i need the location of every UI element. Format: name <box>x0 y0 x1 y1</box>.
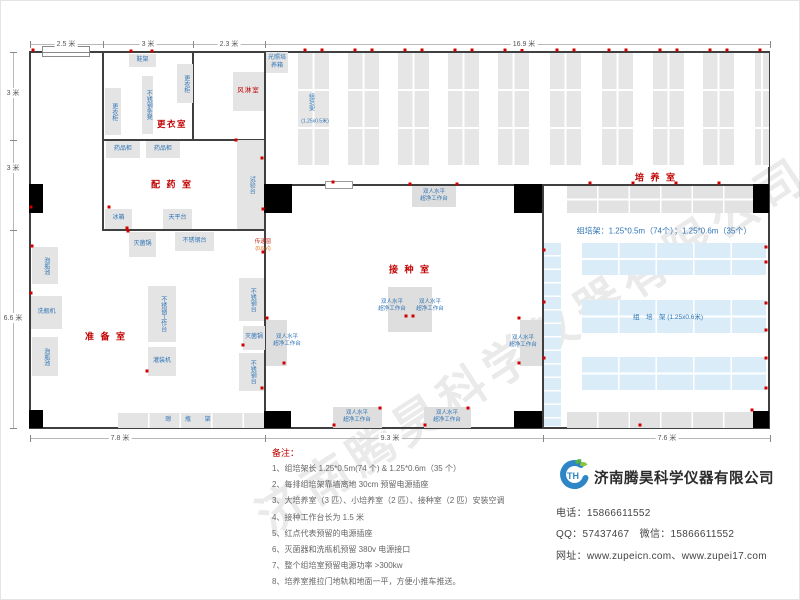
note-line: 8、培养室推拉门地轨和地面一平，方便小推车推送。 <box>272 576 557 587</box>
socket-dot <box>543 357 546 360</box>
socket-dot <box>718 182 721 185</box>
culture-rack-row <box>567 412 753 428</box>
svg-text:TH: TH <box>567 471 579 481</box>
label-top-rack-size: (1.25x0.5米) <box>301 118 329 125</box>
company-name: 济南腾昊科学仪器有限公司 <box>594 467 774 488</box>
dim-tick <box>770 41 771 48</box>
socket-dot <box>261 157 264 160</box>
bench-label-clean-bench-center-right: 双人水平超净工作台 <box>416 299 444 313</box>
contact-list: 电话：15866611552QQ：57437467 微信：15866611552… <box>556 504 794 562</box>
sliding-door <box>325 181 353 189</box>
equipment-medicine-cabinet-1: 药品柜 <box>106 141 140 158</box>
culture-rack-blue-row <box>582 357 766 390</box>
socket-dot <box>354 49 357 52</box>
socket-dot <box>32 49 35 52</box>
dim-tick <box>30 435 31 442</box>
room-label-dispensing-room: 配 药 室 <box>151 178 193 191</box>
socket-dot <box>504 49 507 52</box>
pillar <box>514 411 542 428</box>
equipment-steel-worktable: 不锈钢工作台 <box>148 286 176 342</box>
socket-dot <box>543 249 546 252</box>
socket-dot <box>146 370 149 373</box>
socket-dot <box>371 49 374 52</box>
socket-dot <box>126 227 129 230</box>
pillar <box>753 411 769 428</box>
socket-dot <box>726 49 729 52</box>
contact-line: QQ：57437467 微信：15866611552 <box>556 525 794 540</box>
note-line: 5、红点代表预留的电源插座 <box>272 528 557 539</box>
equipment-locker-right: 更衣柜 <box>177 64 193 103</box>
pillar <box>29 410 43 428</box>
equipment-test-bench: 试验台 <box>237 140 264 229</box>
socket-dot <box>304 49 307 52</box>
socket-dot <box>751 409 754 412</box>
socket-dot <box>30 292 33 295</box>
socket-dot <box>266 317 269 320</box>
note-line: 1、组培架长 1.25*0.5m(74 个) & 1.25*0.6m（35 个） <box>272 463 557 474</box>
socket-dot <box>379 407 382 410</box>
equipment-bottle-washer: 洗瓶机 <box>31 296 62 329</box>
pillar <box>514 184 542 213</box>
dim-tick <box>265 41 266 48</box>
equipment-sterilizer-1: 灭菌锅 <box>129 232 156 257</box>
bench-label-clean-bench-left-wall: 双人水平超净工作台 <box>273 334 301 348</box>
equipment-drying-rack: 晾 瓶 架 <box>118 413 264 428</box>
socket-dot <box>261 387 264 390</box>
equipment-locker-left: 更衣柜 <box>105 88 121 135</box>
socket-dot <box>333 424 336 427</box>
socket-dot <box>471 49 474 52</box>
socket-dot <box>659 49 662 52</box>
note-line: 6、灭菌器和洗瓶机预留 380v 电源接口 <box>272 544 557 555</box>
equipment-balance-table: 天平台 <box>163 209 192 229</box>
socket-dot <box>543 301 546 304</box>
dim-tick <box>103 41 104 48</box>
company-block: TH 济南腾昊科学仪器有限公司 电话：15866611552QQ：5743746… <box>556 458 794 562</box>
notes-block: 备注： 1、组培架长 1.25*0.5m(74 个) & 1.25*0.6m（3… <box>272 446 557 593</box>
room-label-dressing-room: 更衣室 <box>157 118 187 130</box>
wall-dressing-left <box>102 51 104 231</box>
socket-dot <box>556 49 559 52</box>
socket-dot <box>31 245 34 248</box>
socket-dot <box>589 182 592 185</box>
note-line: 4、接种工作台长为 1.5 米 <box>272 512 557 523</box>
dim-tick <box>10 230 17 231</box>
dim-tick <box>10 428 17 429</box>
culture-rack-column <box>348 53 379 167</box>
wall-left <box>29 51 31 429</box>
culture-rack-blue-row <box>582 243 766 275</box>
dim-label-bottom: 9.3 米 <box>379 433 402 443</box>
equipment-light-incubator: 光照培养箱 <box>266 52 288 73</box>
socket-dot <box>283 362 286 365</box>
pillar <box>264 411 291 428</box>
equipment-filling-machine: 灌装机 <box>148 347 176 376</box>
dim-tick <box>10 52 17 53</box>
note-line: 7、整个组培室预留电源功率 >300kw <box>272 560 557 571</box>
dim-label-bottom: 7.8 米 <box>109 433 132 443</box>
socket-dot <box>235 139 238 142</box>
culture-rack-strip <box>544 243 561 426</box>
pillar <box>753 184 769 213</box>
company-logo-icon: TH <box>556 458 590 497</box>
socket-dot <box>409 183 412 186</box>
socket-dot <box>151 50 154 53</box>
equipment-steel-table-2: 不锈钢台 <box>239 278 264 321</box>
culture-rack-column <box>550 53 581 167</box>
note-line: 3、大培养室（3 匹）、小培养室（2 匹）、接种室（2 匹）安装空调 <box>272 495 557 506</box>
dim-tick <box>193 41 194 48</box>
socket-dot <box>242 344 245 347</box>
socket-dot <box>404 49 407 52</box>
socket-dot <box>412 315 415 318</box>
dim-label-top: 2.5 米 <box>55 39 78 49</box>
dim-label-top: 16.9 米 <box>511 39 538 49</box>
socket-dot <box>573 49 576 52</box>
socket-dot <box>30 206 33 209</box>
socket-dot <box>454 49 457 52</box>
pillar <box>29 184 43 213</box>
culture-rack-column <box>398 53 429 167</box>
culture-rack-column <box>755 53 769 167</box>
equipment-soak-pool-2: 泡瓶池 <box>32 337 58 376</box>
socket-dot <box>321 49 324 52</box>
contact-line: 电话：15866611552 <box>556 504 794 519</box>
culture-rack-column <box>498 53 529 167</box>
socket-dot <box>765 261 768 264</box>
socket-dot <box>625 49 628 52</box>
equipment-sterilizer-2: 灭菌锅 <box>243 326 265 350</box>
socket-dot <box>765 387 768 390</box>
dim-label-top: 2.3 米 <box>218 39 241 49</box>
pillar <box>264 184 292 213</box>
notes-list: 1、组培架长 1.25*0.5m(74 个) & 1.25*0.6m（35 个）… <box>272 463 557 587</box>
dim-label-top: 3 米 <box>140 39 157 49</box>
dim-label-left: 3 米 <box>5 88 22 98</box>
equipment-air-shower: 风淋室 <box>233 72 264 111</box>
socket-dot <box>676 49 679 52</box>
culture-rack-column <box>703 53 734 167</box>
label-rack-spec: 组培架：1.25*0.5m（74个）；1.25*0.6m（35个） <box>577 226 752 237</box>
equipment-medicine-cabinet-2: 药品柜 <box>146 141 180 158</box>
socket-dot <box>765 329 768 332</box>
dim-label-left: 3 米 <box>5 163 22 173</box>
socket-dot <box>421 49 424 52</box>
bench-label-clean-bench-center-left: 双人水平超净工作台 <box>378 299 406 313</box>
socket-dot <box>675 182 678 185</box>
note-line: 2、每排组培架靠墙离地 30cm 预留电源插座 <box>272 479 557 490</box>
socket-dot <box>632 182 635 185</box>
socket-dot <box>108 206 111 209</box>
dim-tick <box>30 41 31 48</box>
dim-tick <box>543 435 544 442</box>
floorplan-canvas: 济南腾昊科学仪器有限公司 备注： 1、组培架长 1.25*0.5m(74 个) … <box>0 0 800 600</box>
dim-tick <box>770 435 771 442</box>
socket-dot <box>608 49 611 52</box>
bench-label-clean-bench-top: 双人水平超净工作台 <box>420 189 448 203</box>
equipment-steel-stool: 不锈钢条凳 <box>142 76 153 134</box>
socket-dot <box>262 251 265 254</box>
room-label-inoculation-room: 接 种 室 <box>389 263 431 276</box>
socket-dot <box>127 230 130 233</box>
bench-label-clean-bench-bottom-1: 双人水平超净工作台 <box>343 410 371 424</box>
bench-label-clean-bench-bottom-2: 双人水平超净工作台 <box>433 410 461 424</box>
socket-dot <box>765 302 768 305</box>
socket-dot <box>759 49 762 52</box>
dim-tick <box>10 140 17 141</box>
socket-dot <box>467 407 470 410</box>
socket-dot <box>639 424 642 427</box>
culture-rack-column <box>448 53 479 167</box>
equipment-soak-pool-1: 泡瓶池 <box>32 247 58 284</box>
dim-label-bottom: 7.6 米 <box>656 433 679 443</box>
socket-dot <box>709 49 712 52</box>
culture-rack-column <box>602 53 633 167</box>
contact-line: 网址：www.zupeicn.com、www.zupei17.com <box>556 547 794 562</box>
label-blue-rack-name: 组 培 架 (1.25x0.6米) <box>633 311 703 321</box>
label-top-rack-name: 组培架 <box>307 93 316 111</box>
socket-dot <box>424 424 427 427</box>
notes-title: 备注： <box>272 446 557 459</box>
dim-label-left: 6.6 米 <box>2 313 25 323</box>
dim-tick <box>265 435 266 442</box>
equipment-steel-table-1: 不锈钢台 <box>175 232 214 251</box>
culture-rack-column <box>653 53 684 167</box>
socket-dot <box>262 208 265 211</box>
socket-dot <box>332 181 335 184</box>
equipment-shoe-rack: 鞋架 <box>129 54 156 67</box>
room-label-culture-room: 培 养 室 <box>635 171 677 184</box>
dim-line-left <box>13 52 14 428</box>
bench-label-clean-bench-right-wall: 双人水平超净工作台 <box>509 335 537 349</box>
socket-dot <box>405 315 408 318</box>
socket-dot <box>518 362 521 365</box>
equipment-steel-table-3: 不锈钢台 <box>239 353 264 391</box>
culture-rack-row <box>567 186 753 213</box>
socket-dot <box>765 357 768 360</box>
room-label-prep-room: 准 备 室 <box>85 330 127 343</box>
socket-dot <box>518 317 521 320</box>
socket-dot <box>456 183 459 186</box>
socket-dot <box>130 50 133 53</box>
socket-dot <box>765 246 768 249</box>
